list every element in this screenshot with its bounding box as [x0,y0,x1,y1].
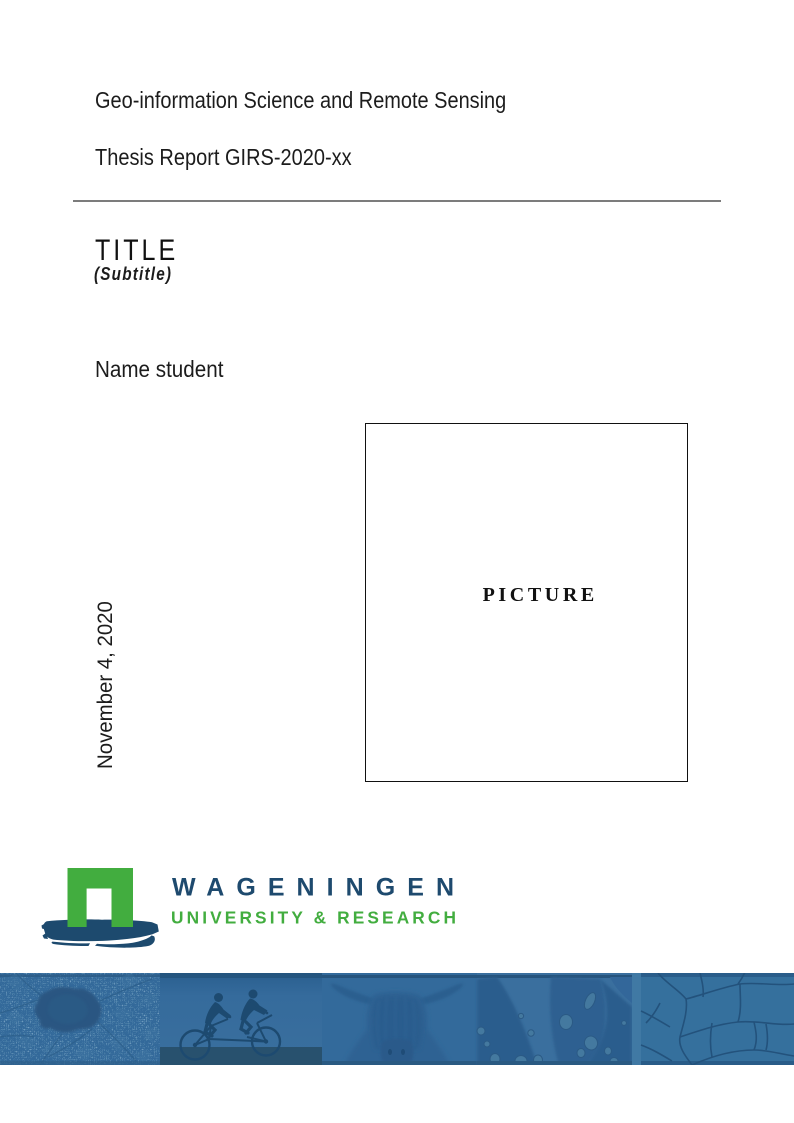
svg-text:UNIVERSITY & RESEARCH: UNIVERSITY & RESEARCH [171,908,456,928]
svg-text:WAGENINGEN: WAGENINGEN [172,874,454,902]
